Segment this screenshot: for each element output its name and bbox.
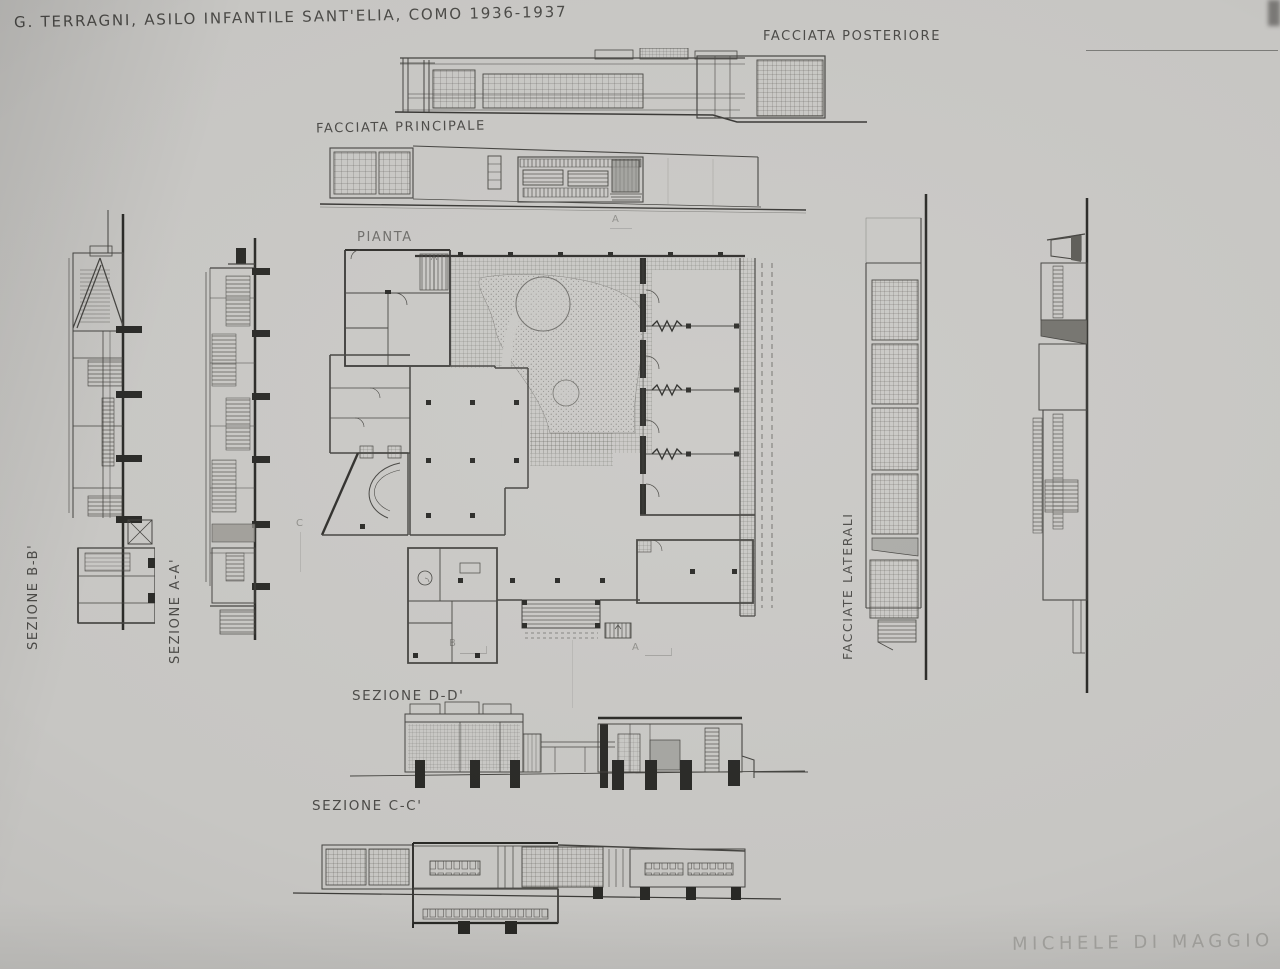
label-side-facades: FACCIATE LATERALI (840, 512, 855, 660)
label-rear-facade: FACCIATA POSTERIORE (763, 29, 941, 44)
sketch-sheet: G. TERRAGNI, ASILO INFANTILE SANT'ELIA, … (0, 0, 1280, 969)
photo-corner-shadow (1268, 0, 1280, 26)
label-section-cc: SEZIONE C-C' (312, 798, 423, 814)
side-facade-1-drawing (858, 188, 943, 688)
label-section-aa: SEZIONE A-A' (168, 558, 183, 664)
section-bb-drawing (60, 208, 155, 638)
sheet-title: G. TERRAGNI, ASILO INFANTILE SANT'ELIA, … (14, 3, 568, 32)
main-facade-drawing (318, 136, 808, 216)
section-aa-drawing (198, 238, 288, 643)
label-section-bb: SEZIONE B-B' (26, 544, 41, 650)
rear-facade-drawing (345, 48, 870, 126)
plan-drawing (300, 238, 805, 670)
section-cc-drawing (293, 823, 783, 935)
author-signature: MICHELE DI MAGGIO (1012, 930, 1274, 955)
stray-pencil-line (1086, 50, 1278, 51)
side-facade-2-drawing (1023, 188, 1103, 703)
section-dd-drawing (350, 698, 810, 798)
